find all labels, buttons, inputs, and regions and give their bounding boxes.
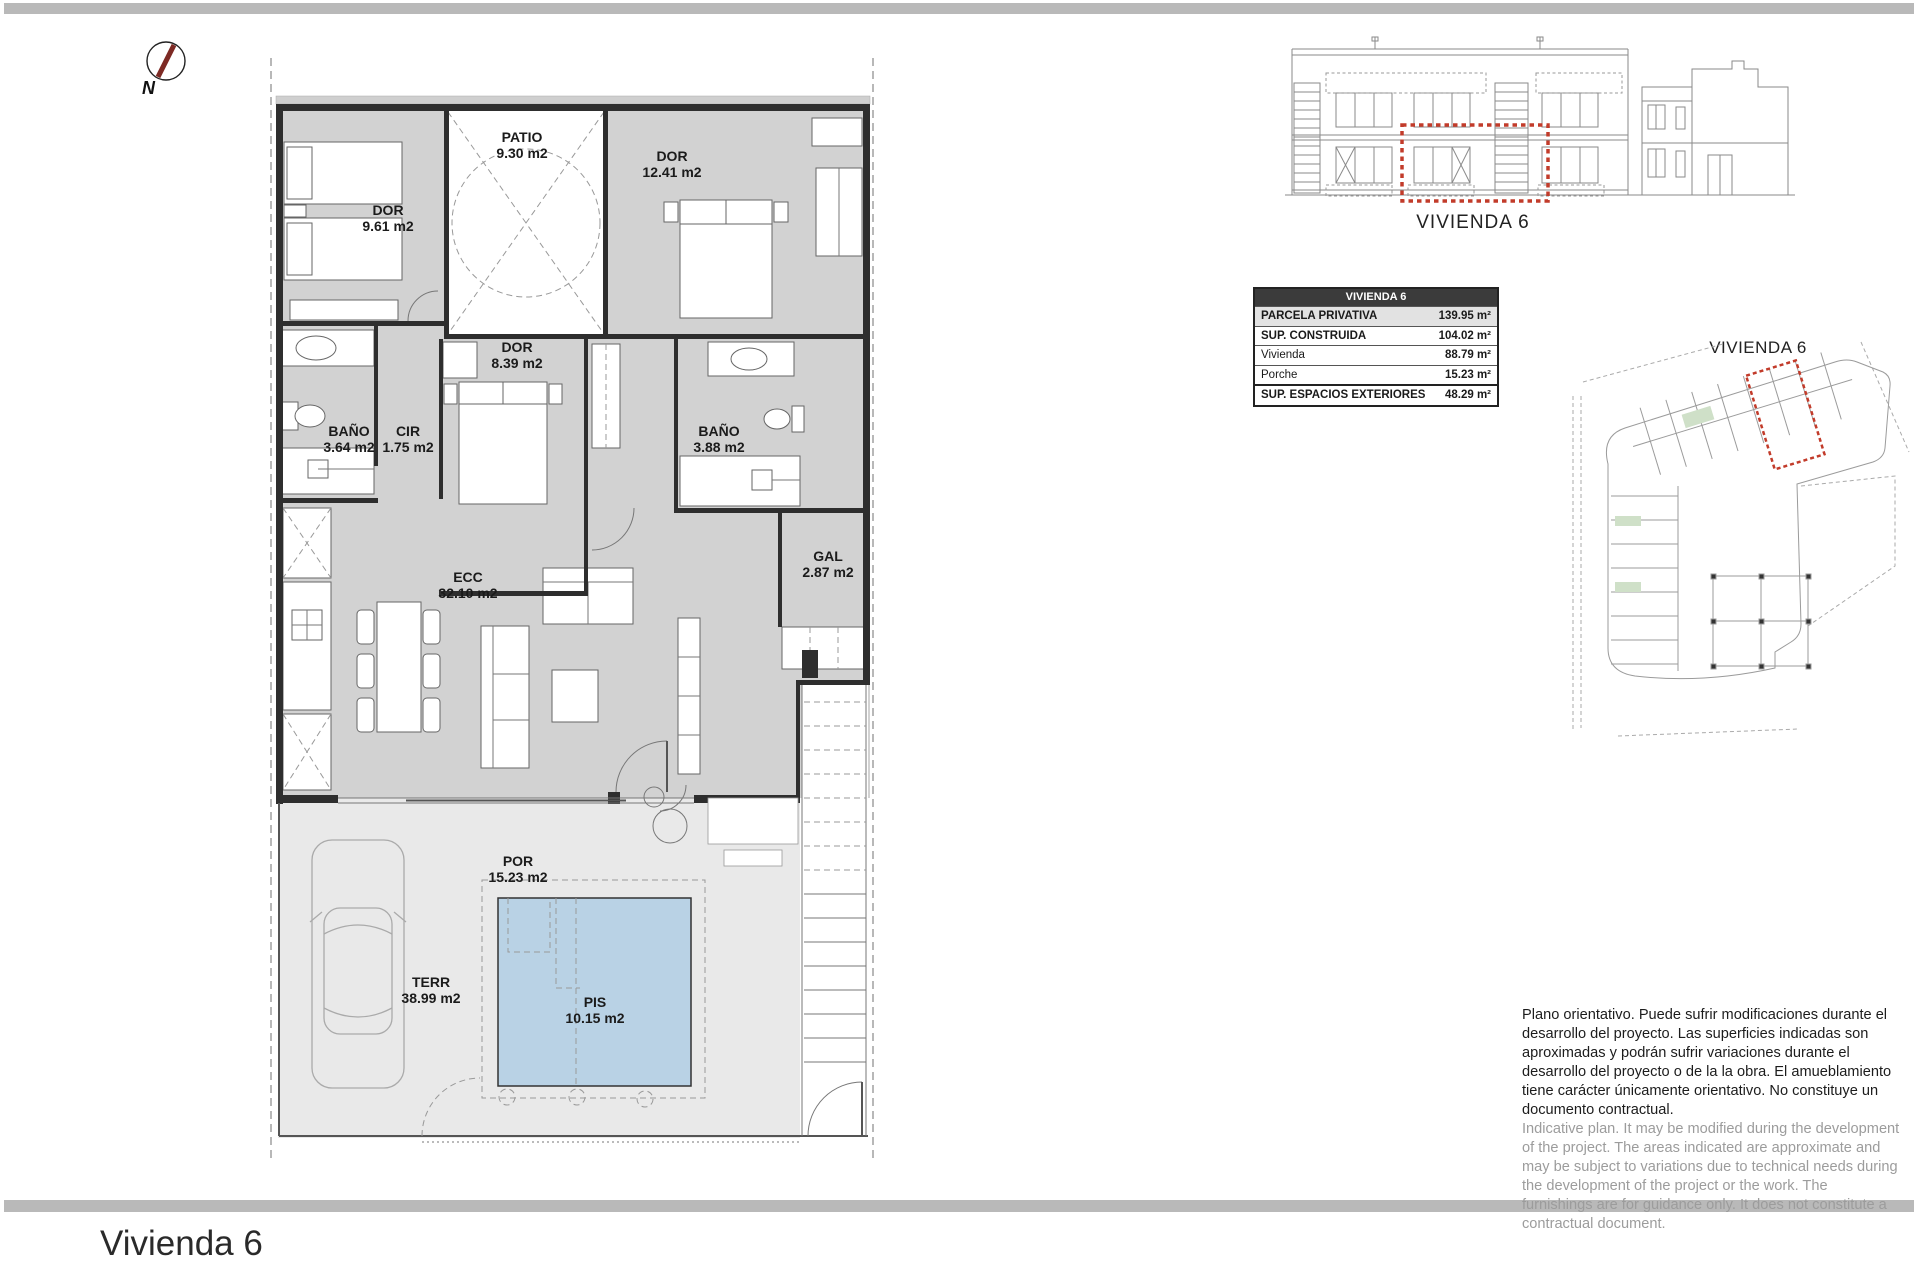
dining-set: [357, 602, 440, 732]
room-label-bano2-area: 3.88 m2: [693, 439, 745, 455]
room-label-pis-area: 10.15 m2: [565, 1010, 624, 1026]
site-plan: [1563, 336, 1918, 746]
room-label-cir-name: CIR: [396, 423, 420, 439]
elevation-drawing: [1280, 35, 1800, 210]
room-label-bano2-name: BAÑO: [698, 422, 739, 439]
stair-tower-hatch-middle: [1495, 83, 1528, 193]
stair-tower-hatch-left: [1294, 83, 1320, 193]
room-label-dor1-name: DOR: [372, 202, 403, 218]
room-label-dor3-name: DOR: [501, 339, 532, 355]
north-label: N: [142, 78, 156, 98]
table-row: SUP. CONSTRUIDA 104.02 m²: [1255, 326, 1497, 346]
room-label-terr-area: 38.99 m2: [401, 990, 460, 1006]
room-label-bano1-area: 3.64 m2: [323, 439, 375, 455]
row-value: 15.23 m²: [1445, 369, 1491, 381]
room-label-cir-area: 1.75 m2: [382, 439, 434, 455]
compass-needle-icon: [158, 45, 174, 77]
table-row: Porche 15.23 m²: [1255, 365, 1497, 385]
kitchen-counter: [283, 508, 331, 790]
room-label-patio-area: 9.30 m2: [496, 145, 548, 161]
room-label-bano1-name: BAÑO: [328, 422, 369, 439]
room-label-ecc-area: 32.10 m2: [438, 585, 497, 601]
row-label: SUP. CONSTRUIDA: [1261, 330, 1366, 342]
row-value: 48.29 m²: [1445, 389, 1491, 401]
party-wall-band: [276, 96, 870, 104]
areas-table-header: VIVIENDA 6: [1255, 289, 1497, 306]
room-label-por-area: 15.23 m2: [488, 869, 547, 885]
galeria-cabinets: [782, 627, 866, 669]
sheet-title: Vivienda 6: [100, 1224, 263, 1264]
areas-table: VIVIENDA 6 PARCELA PRIVATIVA 139.95 m² S…: [1253, 287, 1499, 407]
table-row: SUP. ESPACIOS EXTERIORES 48.29 m²: [1255, 384, 1497, 405]
neighbor-building: [1642, 61, 1788, 195]
table-row: Vivienda 88.79 m²: [1255, 345, 1497, 365]
row-value: 88.79 m²: [1445, 349, 1491, 361]
row-label: SUP. ESPACIOS EXTERIORES: [1261, 389, 1425, 401]
north-arrow: N: [133, 34, 199, 106]
hall-closet: [592, 344, 620, 448]
top-border-bar: [4, 3, 1914, 14]
room-label-ecc-name: ECC: [453, 569, 483, 585]
room-label-dor2-name: DOR: [656, 148, 687, 164]
disclaimer: Plano orientativo. Puede sufrir modifica…: [1522, 1006, 1902, 1234]
room-label-dor3-area: 8.39 m2: [491, 355, 543, 371]
floor-plan: DOR 9.61 m2 PATIO 9.30 m2 DOR 12.41 m2 B…: [256, 50, 896, 1170]
room-label-terr-name: TERR: [412, 974, 450, 990]
disclaimer-english: Indicative plan. It may be modified duri…: [1522, 1120, 1902, 1234]
room-label-dor2-area: 12.41 m2: [642, 164, 701, 180]
table-row: PARCELA PRIVATIVA 139.95 m²: [1255, 306, 1497, 326]
room-label-dor1-area: 9.61 m2: [362, 218, 414, 234]
row-label: Porche: [1261, 369, 1297, 381]
disclaimer-spanish: Plano orientativo. Puede sufrir modifica…: [1522, 1006, 1902, 1120]
room-label-por-name: POR: [503, 853, 533, 869]
row-label: PARCELA PRIVATIVA: [1261, 310, 1377, 322]
plan-sheet: N: [0, 0, 1920, 1280]
room-label-gal-name: GAL: [813, 548, 843, 564]
row-value: 139.95 m²: [1439, 310, 1491, 322]
room-label-gal-area: 2.87 m2: [802, 564, 854, 580]
room-label-patio-name: PATIO: [502, 129, 543, 145]
row-label: Vivienda: [1261, 349, 1305, 361]
landscape-green: [1615, 406, 1714, 592]
row-value: 104.02 m²: [1439, 330, 1491, 342]
elevation-caption: VIVIENDA 6: [1388, 212, 1558, 234]
room-label-pis-name: PIS: [584, 994, 607, 1010]
siteplan-unit-highlight: [1746, 360, 1824, 469]
